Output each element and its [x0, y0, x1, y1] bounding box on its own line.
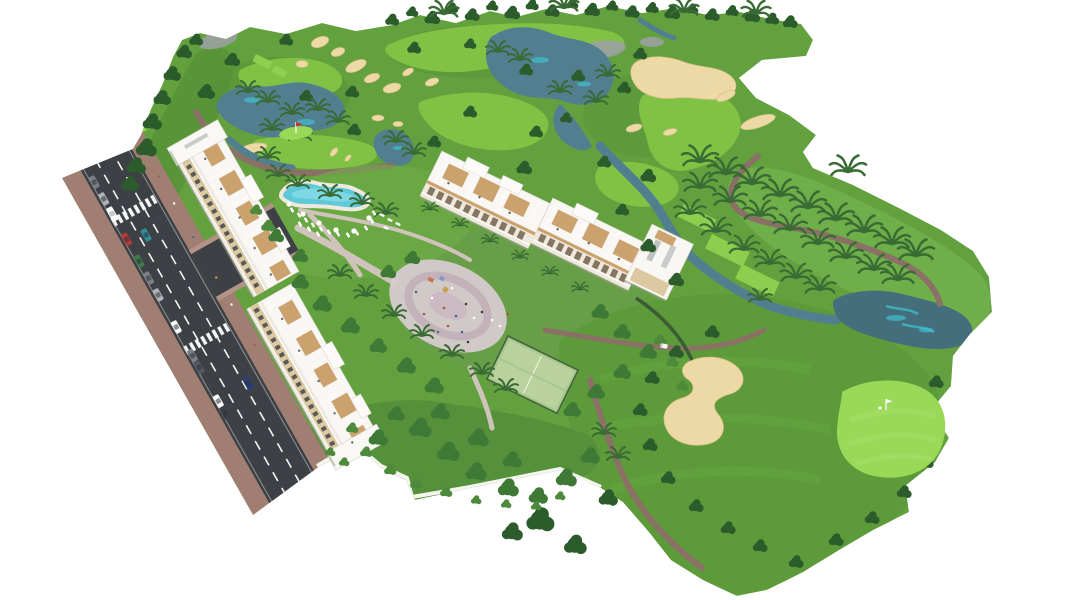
- aerial-render-image: [0, 0, 1068, 600]
- render-stage: [0, 0, 1068, 600]
- lower-putting-green: [837, 380, 945, 477]
- golfer: [878, 406, 881, 409]
